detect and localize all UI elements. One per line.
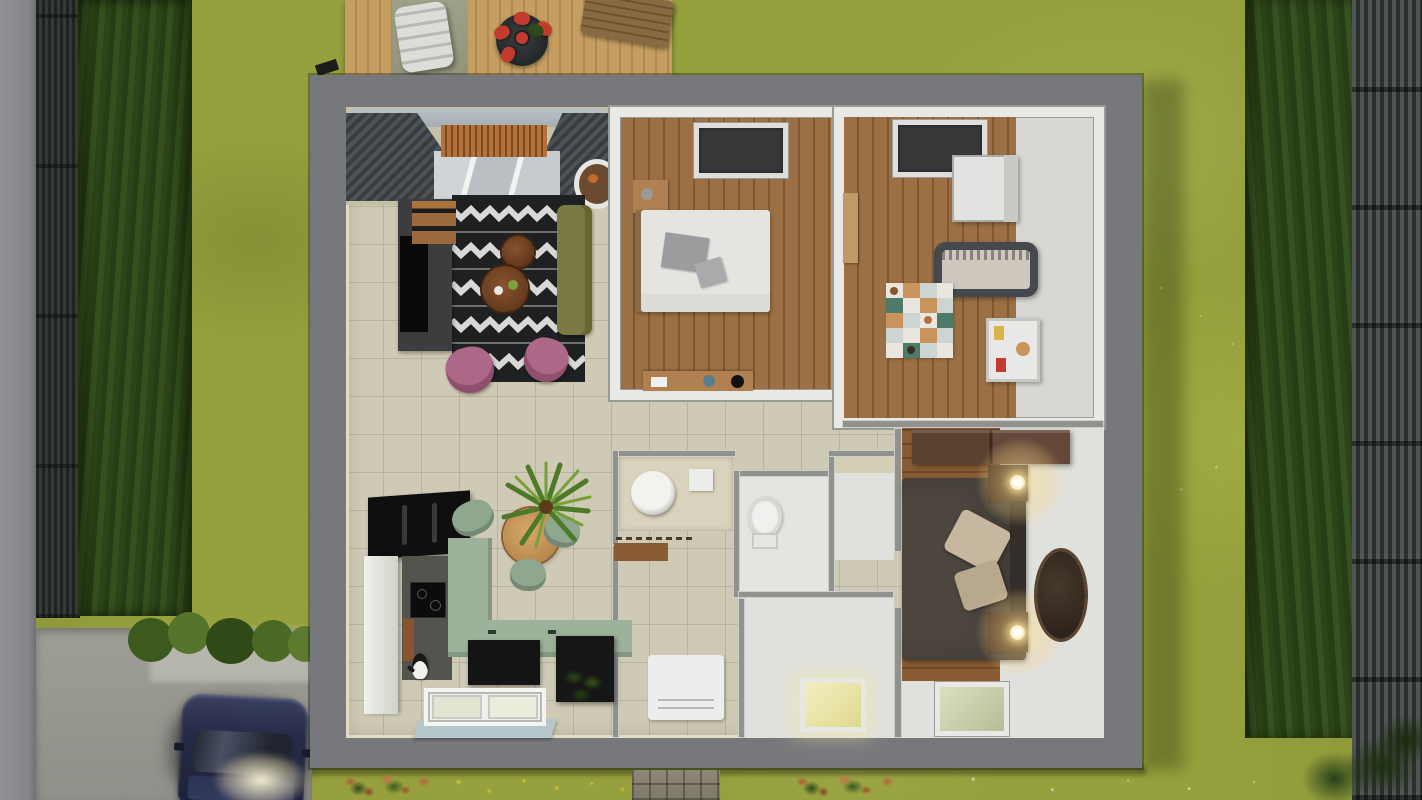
glass-canopy bbox=[434, 151, 560, 199]
deck-red-plate bbox=[516, 32, 528, 44]
wood-cabinet bbox=[412, 201, 456, 244]
sun-lounger bbox=[393, 0, 455, 73]
flower-bush-right bbox=[788, 768, 906, 800]
left-fence bbox=[36, 0, 80, 618]
garden-tile-path bbox=[632, 770, 720, 800]
wall-bath-left bbox=[738, 598, 745, 738]
laundry-rail bbox=[616, 537, 696, 540]
olive-sofa bbox=[557, 205, 592, 335]
sidewalk bbox=[0, 0, 36, 800]
coffee-table-large bbox=[482, 266, 528, 312]
oval-rug bbox=[1037, 551, 1085, 639]
wall-wc-left bbox=[733, 470, 740, 598]
toilet-bowl bbox=[748, 497, 782, 537]
wall-master-left-upper bbox=[894, 428, 902, 552]
toy-shelf bbox=[986, 318, 1040, 382]
shrub bbox=[168, 612, 210, 654]
cat bbox=[412, 653, 428, 679]
hanging-chair-cushion bbox=[588, 174, 598, 183]
nightstand-lamp-off bbox=[641, 188, 653, 200]
glowing-skylight-hall bbox=[800, 678, 866, 732]
desk-cup bbox=[703, 375, 715, 387]
tv bbox=[400, 236, 428, 332]
desk-paper bbox=[651, 377, 667, 387]
flower-bush-left bbox=[338, 768, 440, 800]
counter-handle bbox=[548, 630, 556, 634]
closet-shelf-band bbox=[835, 457, 894, 473]
cabinet-handle bbox=[432, 503, 437, 543]
bedroom-double-bed bbox=[635, 210, 770, 312]
doormat-line bbox=[658, 707, 714, 709]
wall-laundry-left bbox=[612, 450, 619, 545]
window-pane bbox=[432, 695, 482, 719]
toy-book-yellow bbox=[994, 326, 1004, 340]
table-plant bbox=[508, 280, 518, 290]
nursery-wardrobe bbox=[952, 155, 1018, 222]
crib-rail bbox=[942, 250, 1030, 260]
wall-wc-top bbox=[733, 470, 835, 477]
laundry-counter bbox=[619, 457, 733, 531]
car-mirror-left bbox=[174, 742, 184, 751]
house-interior bbox=[346, 107, 1104, 738]
cutting-board bbox=[403, 619, 414, 661]
wall-closet-top bbox=[828, 450, 900, 457]
potted-plant-dark bbox=[560, 660, 606, 710]
left-hedge bbox=[78, 0, 192, 616]
laundry-wood-shelf bbox=[614, 543, 668, 561]
lit-lamp-bottom bbox=[1010, 625, 1025, 640]
detergent-box bbox=[689, 469, 713, 491]
entry-doormat bbox=[648, 655, 724, 720]
palm-plant-svg bbox=[498, 459, 594, 555]
hob-ring bbox=[430, 600, 441, 611]
hob-ring bbox=[417, 589, 427, 599]
palm-plant bbox=[498, 459, 594, 555]
black-base-units bbox=[468, 640, 540, 685]
house bbox=[310, 75, 1142, 768]
kitchen-window bbox=[424, 688, 546, 726]
cabinet-handle bbox=[402, 505, 407, 545]
shrub bbox=[128, 618, 174, 662]
window-pane bbox=[488, 695, 538, 719]
right-hedge bbox=[1245, 0, 1355, 738]
patchwork-playmat bbox=[886, 283, 953, 358]
induction-hob bbox=[410, 582, 446, 618]
right-fence bbox=[1352, 0, 1422, 800]
coffee-table-small bbox=[502, 236, 534, 268]
bedroom-nightstand bbox=[633, 180, 668, 213]
wall-wc-right bbox=[828, 450, 835, 598]
yellow-flowers bbox=[438, 770, 643, 800]
table-cup bbox=[494, 286, 503, 295]
toy-book-red bbox=[996, 358, 1006, 372]
living-room-terrace bbox=[346, 107, 610, 205]
doormat-line bbox=[658, 699, 714, 701]
shrub bbox=[206, 618, 256, 664]
lit-lamp-top bbox=[1010, 475, 1025, 490]
master-skylight bbox=[935, 682, 1009, 736]
toy-bear bbox=[1016, 342, 1030, 356]
headlight-glow bbox=[196, 742, 326, 800]
corner-shrub bbox=[1288, 714, 1422, 800]
flower-specks bbox=[930, 770, 1290, 800]
desk-bowl bbox=[731, 375, 744, 388]
wood-slat-screen bbox=[441, 125, 547, 157]
wall-master-left-lower bbox=[894, 607, 902, 738]
playmat-grid bbox=[886, 283, 953, 358]
bedroom-skylight bbox=[694, 123, 788, 178]
house-shadow-right bbox=[1142, 80, 1184, 770]
bedroom-desk bbox=[643, 371, 753, 391]
wall-bath-top bbox=[738, 591, 894, 598]
wall-laundry-top bbox=[612, 450, 736, 457]
tall-white-cabinet bbox=[364, 556, 398, 714]
dining-chair bbox=[509, 558, 547, 592]
nursery-wall-shelf bbox=[843, 193, 858, 263]
washing-machine bbox=[631, 471, 675, 515]
toilet-base bbox=[752, 533, 778, 549]
garden-scene-viewport[interactable] bbox=[0, 0, 1422, 800]
counter-handle bbox=[488, 630, 496, 634]
